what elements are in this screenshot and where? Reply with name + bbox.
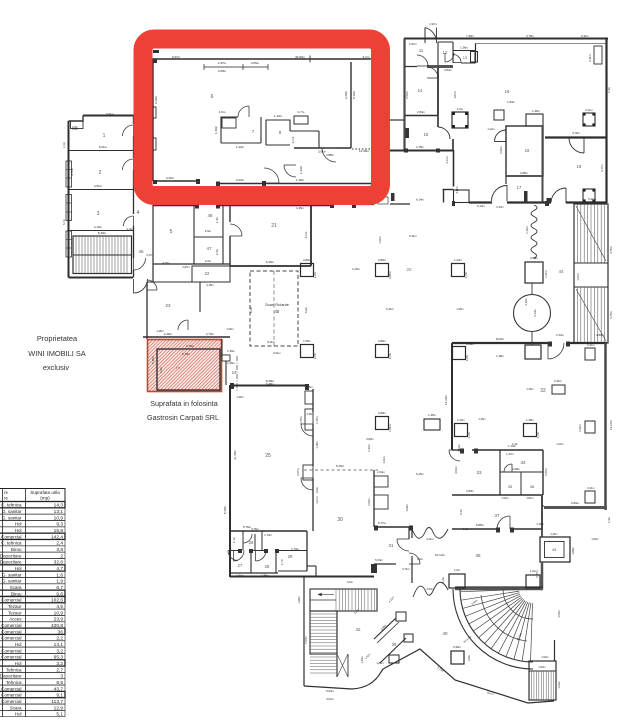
svg-text:2,34m: 2,34m (556, 333, 564, 337)
svg-text:Hol: Hol (15, 642, 22, 647)
svg-text:1,85m: 1,85m (544, 467, 548, 475)
svg-text:1,50m: 1,50m (591, 537, 598, 541)
svg-text:21: 21 (271, 223, 277, 229)
svg-text:1,47m: 1,47m (506, 452, 514, 456)
svg-text:1,84m: 1,84m (507, 100, 515, 104)
svg-text:2,47m: 2,47m (146, 253, 153, 257)
svg-text:5,7m: 5,7m (62, 219, 66, 225)
svg-text:2,96m: 2,96m (499, 145, 503, 153)
svg-text:Proprietatea: Proprietatea (37, 334, 78, 343)
svg-text:6,14m: 6,14m (416, 198, 424, 202)
svg-text:6,0m: 6,0m (347, 580, 353, 584)
svg-text:13,27m: 13,27m (609, 420, 613, 431)
svg-text:1,81m: 1,81m (376, 661, 383, 665)
svg-text:0,80m: 0,80m (530, 256, 538, 260)
svg-text:1,07m: 1,07m (315, 496, 319, 503)
svg-text:34: 34 (520, 460, 526, 465)
svg-text:Scari Rulante: Scari Rulante (265, 302, 290, 307)
svg-text:0,7m: 0,7m (298, 110, 305, 114)
svg-text:2,67m: 2,67m (182, 265, 190, 269)
svg-text:1,21m: 1,21m (378, 236, 382, 243)
svg-text:4,75m: 4,75m (609, 310, 613, 318)
svg-text:6: 6 (211, 94, 214, 100)
svg-text:1,39m: 1,39m (227, 349, 235, 353)
svg-text:5,46m: 5,46m (416, 472, 424, 476)
svg-text:0,86m: 0,86m (388, 270, 392, 278)
svg-text:G. sanitar: G. sanitar (2, 572, 22, 577)
svg-text:1,46m: 1,46m (550, 532, 557, 536)
svg-text:43: 43 (552, 547, 557, 552)
svg-text:exclusiv: exclusiv (43, 363, 70, 372)
svg-text:1,43m: 1,43m (236, 145, 245, 149)
svg-text:1,18m: 1,18m (315, 441, 319, 448)
svg-text:Hol: Hol (15, 661, 22, 666)
svg-text:1,4m: 1,4m (512, 442, 518, 446)
svg-text:29: 29 (288, 554, 293, 559)
svg-text:3,23m: 3,23m (236, 178, 245, 182)
svg-text:4,76m: 4,76m (186, 344, 195, 348)
svg-text:1,73m: 1,73m (291, 547, 299, 551)
svg-text:39: 39 (392, 642, 397, 647)
svg-text:35: 35 (508, 484, 513, 489)
svg-text:13,35m: 13,35m (359, 149, 370, 153)
svg-text:Gastrosin Carpati SRL: Gastrosin Carpati SRL (147, 413, 219, 422)
svg-text:1,2m: 1,2m (465, 354, 469, 361)
svg-text:5,61m: 5,61m (106, 112, 114, 116)
svg-text:0,86m: 0,86m (378, 339, 386, 343)
svg-text:1,39m: 1,39m (236, 395, 243, 399)
svg-text:C. tehnica: C. tehnica (1, 503, 22, 508)
svg-text:5,46m: 5,46m (336, 464, 345, 468)
svg-text:4,15m: 4,15m (296, 206, 304, 210)
svg-text:Tezaur: Tezaur (8, 610, 22, 615)
svg-text:48: 48 (207, 213, 213, 218)
svg-text:0,41m: 0,41m (554, 379, 562, 383)
svg-text:8,03m: 8,03m (496, 337, 505, 341)
svg-text:5,32m: 5,32m (352, 90, 356, 99)
svg-text:6,2m: 6,2m (249, 306, 253, 313)
svg-text:3,71m: 3,71m (402, 567, 410, 571)
svg-text:0,86m: 0,86m (378, 258, 386, 262)
svg-text:4,05m: 4,05m (218, 69, 227, 73)
svg-text:4,83m: 4,83m (571, 501, 580, 505)
svg-text:3: 3 (97, 211, 100, 217)
svg-text:30: 30 (337, 517, 343, 523)
svg-text:7,4m: 7,4m (607, 86, 611, 93)
svg-text:re: re (4, 496, 8, 501)
svg-text:4,88m: 4,88m (326, 153, 335, 157)
svg-text:4,15m: 4,15m (206, 283, 214, 287)
svg-text:2,47m: 2,47m (218, 61, 227, 65)
svg-text:5: 5 (170, 229, 173, 235)
svg-text:2,1m: 2,1m (291, 136, 295, 143)
svg-text:2,97m: 2,97m (409, 42, 417, 46)
svg-text:6,31m: 6,31m (386, 307, 394, 311)
svg-text:Depozitare: Depozitare (0, 553, 22, 558)
svg-text:Comercial: Comercial (1, 598, 21, 603)
svg-text:6,2m: 6,2m (363, 55, 370, 59)
svg-text:3,77m: 3,77m (600, 163, 604, 171)
svg-text:Birou: Birou (11, 591, 22, 596)
svg-text:1,12m: 1,12m (274, 114, 283, 118)
svg-text:1,48m: 1,48m (496, 354, 504, 358)
svg-text:2,08m: 2,08m (512, 467, 520, 471)
svg-text:Comercial: Comercial (1, 655, 21, 660)
svg-text:1,06m: 1,06m (303, 339, 311, 343)
svg-text:1,97m: 1,97m (429, 22, 437, 26)
svg-text:1,24m: 1,24m (454, 258, 462, 262)
svg-text:4,10m: 4,10m (94, 225, 103, 229)
svg-text:Comercial: Comercial (1, 534, 21, 539)
svg-text:re: re (4, 490, 8, 495)
svg-text:47: 47 (206, 246, 212, 251)
svg-text:Acces: Acces (9, 617, 22, 622)
svg-text:1,53m: 1,53m (501, 496, 508, 500)
svg-text:1,0m: 1,0m (530, 569, 537, 573)
svg-text:1,06m: 1,06m (367, 497, 371, 505)
svg-text:1,0m: 1,0m (463, 527, 469, 531)
svg-text:G. sanitar: G. sanitar (2, 515, 22, 520)
svg-text:4,10m: 4,10m (126, 227, 133, 231)
svg-text:1,50m: 1,50m (538, 665, 545, 669)
svg-text:1,1m: 1,1m (232, 536, 236, 543)
svg-text:3,83m: 3,83m (466, 489, 474, 493)
svg-text:33: 33 (476, 470, 482, 475)
svg-text:0,75m: 0,75m (299, 415, 303, 423)
svg-text:19: 19 (577, 164, 582, 169)
svg-text:40: 40 (442, 631, 448, 636)
svg-text:5,45m: 5,45m (151, 355, 155, 363)
svg-text:0,9m: 0,9m (315, 486, 319, 493)
svg-text:1,21m: 1,21m (382, 456, 386, 463)
svg-text:0,41m: 0,41m (587, 343, 594, 347)
svg-text:1,39m: 1,39m (297, 596, 301, 603)
svg-text:42: 42 (355, 627, 361, 632)
svg-text:4,60m: 4,60m (344, 90, 348, 99)
svg-text:27: 27 (238, 563, 243, 568)
svg-text:3,71m: 3,71m (70, 167, 74, 176)
svg-text:Comercial: Comercial (1, 699, 21, 704)
svg-text:1,07m: 1,07m (296, 467, 300, 475)
svg-text:5,28m: 5,28m (223, 505, 227, 514)
svg-text:0,41m: 0,41m (578, 424, 582, 431)
svg-text:14,32m: 14,32m (444, 395, 448, 406)
svg-text:26: 26 (249, 540, 254, 545)
svg-text:1,48m: 1,48m (156, 329, 163, 333)
svg-text:2,53m: 2,53m (405, 90, 409, 98)
svg-text:7,36m: 7,36m (466, 34, 474, 38)
svg-text:4,75m: 4,75m (526, 34, 534, 38)
svg-text:4,76m: 4,76m (572, 131, 580, 135)
svg-text:5,64m: 5,64m (375, 558, 383, 562)
svg-text:1,23m: 1,23m (352, 267, 360, 271)
svg-text:1,81m: 1,81m (526, 496, 533, 500)
svg-text:2,08m: 2,08m (466, 342, 474, 346)
svg-text:1,46m: 1,46m (456, 307, 463, 311)
svg-text:4: 4 (137, 210, 140, 216)
svg-text:0,41m: 0,41m (581, 34, 589, 38)
svg-text:46: 46 (138, 249, 144, 254)
svg-text:Suprafata in folosinta: Suprafata in folosinta (150, 399, 218, 408)
svg-text:6,31m: 6,31m (409, 234, 417, 238)
svg-text:44: 44 (559, 269, 564, 274)
svg-text:1,06m: 1,06m (226, 327, 233, 331)
svg-text:1,1m: 1,1m (62, 142, 66, 148)
svg-text:1,2m: 1,2m (313, 352, 317, 359)
svg-text:Hol: Hol (15, 522, 22, 527)
svg-text:G. sanitar: G. sanitar (2, 509, 22, 514)
svg-text:Comercial: Comercial (1, 629, 21, 634)
svg-text:5,73m: 5,73m (182, 352, 190, 356)
svg-text:Comercial: Comercial (1, 623, 21, 628)
svg-text:Comercial: Comercial (1, 686, 21, 691)
svg-text:WINI IMOBILI SA: WINI IMOBILI SA (28, 349, 86, 358)
svg-text:14: 14 (418, 88, 423, 93)
svg-text:24: 24 (232, 370, 237, 375)
svg-text:1,35m: 1,35m (478, 417, 485, 421)
svg-text:32: 32 (540, 388, 546, 394)
svg-text:38: 38 (475, 553, 481, 558)
svg-text:18: 18 (525, 148, 530, 153)
svg-text:3,77m: 3,77m (378, 521, 387, 525)
svg-text:15: 15 (424, 132, 429, 137)
svg-text:4,11m: 4,11m (455, 186, 459, 193)
svg-text:0,95m: 0,95m (453, 645, 461, 649)
svg-text:3,17m: 3,17m (445, 156, 449, 163)
svg-text:4,53m: 4,53m (426, 587, 433, 591)
svg-text:4,28m: 4,28m (154, 95, 158, 104)
svg-text:2,8m: 2,8m (72, 125, 78, 129)
svg-text:2,9m: 2,9m (205, 229, 212, 233)
svg-text:4,73m: 4,73m (206, 332, 215, 336)
svg-text:3,9m: 3,9m (159, 366, 163, 373)
svg-text:37: 37 (494, 513, 500, 518)
svg-text:(mp): (mp) (40, 496, 50, 501)
svg-text:Tehnica: Tehnica (6, 680, 22, 685)
svg-text:1,36m: 1,36m (532, 109, 540, 113)
svg-text:1,35m: 1,35m (526, 418, 534, 422)
svg-text:0,80m: 0,80m (378, 411, 386, 415)
svg-text:0,97m: 0,97m (172, 55, 181, 59)
svg-text:1,40m: 1,40m (214, 125, 218, 134)
svg-text:7,03m: 7,03m (304, 635, 308, 643)
svg-text:1,88m: 1,88m (571, 547, 575, 554)
svg-text:Comercial: Comercial (1, 648, 21, 653)
svg-text:3,14m: 3,14m (533, 308, 537, 316)
svg-text:0,80m: 0,80m (366, 437, 373, 441)
svg-text:Scara: Scara (10, 585, 22, 590)
svg-text:3,21m: 3,21m (273, 351, 281, 355)
svg-text:6,2m: 6,2m (304, 307, 308, 313)
svg-text:Comercial: Comercial (1, 636, 21, 641)
svg-text:Birou: Birou (11, 547, 22, 552)
svg-text:4,21m: 4,21m (426, 537, 434, 541)
svg-text:4,75m: 4,75m (609, 245, 613, 253)
svg-text:1,9m: 1,9m (219, 110, 226, 114)
svg-text:0,6m: 0,6m (467, 655, 471, 661)
svg-text:1: 1 (103, 133, 106, 139)
svg-text:1,50m: 1,50m (557, 610, 561, 617)
svg-text:Tezaur: Tezaur (8, 604, 22, 609)
svg-text:1,18m: 1,18m (296, 178, 305, 182)
svg-text:1,7m: 1,7m (280, 558, 284, 565)
svg-text:3,84m: 3,84m (444, 68, 452, 72)
svg-text:7,7: 7,7 (176, 366, 181, 370)
svg-text:2,75m: 2,75m (416, 145, 424, 149)
svg-text:5,1: 5,1 (56, 712, 63, 718)
svg-text:1,47m: 1,47m (576, 273, 580, 280)
svg-text:1,35m: 1,35m (227, 361, 235, 365)
svg-text:1,50m: 1,50m (541, 655, 548, 659)
svg-text:1,35m: 1,35m (428, 413, 436, 417)
svg-text:1,0m: 1,0m (417, 557, 423, 561)
svg-text:0,41m: 0,41m (585, 108, 592, 112)
svg-text:1,2m: 1,2m (313, 271, 317, 278)
svg-text:Suprafata utila: Suprafata utila (30, 490, 60, 495)
svg-text:6,14m: 6,14m (477, 204, 485, 208)
svg-text:0,33m: 0,33m (496, 205, 503, 209)
svg-text:4,51m: 4,51m (94, 184, 103, 188)
svg-text:1,73m: 1,73m (264, 533, 272, 537)
svg-text:5,61m: 5,61m (99, 145, 108, 149)
svg-text:1,0m: 1,0m (454, 568, 461, 572)
svg-text:1,4m: 1,4m (215, 216, 219, 223)
svg-text:C. tehnica: C. tehnica (1, 541, 22, 546)
svg-text:1,2m: 1,2m (467, 431, 471, 438)
svg-text:3,32m: 3,32m (166, 176, 175, 180)
svg-text:3,76m: 3,76m (251, 527, 259, 531)
svg-text:1,50m: 1,50m (557, 681, 561, 688)
svg-text:6,25m: 6,25m (266, 260, 275, 264)
svg-text:1,15m: 1,15m (315, 415, 319, 423)
svg-text:2,49m: 2,49m (164, 332, 173, 336)
svg-text:13: 13 (463, 55, 468, 60)
svg-text:31: 31 (388, 543, 394, 548)
svg-text:Hol: Hol (15, 528, 22, 533)
svg-text:23: 23 (165, 303, 171, 308)
svg-text:17: 17 (517, 185, 522, 190)
svg-text:Hol: Hol (15, 712, 22, 717)
svg-text:2,4m: 2,4m (215, 248, 219, 255)
svg-text:1,0m: 1,0m (457, 107, 464, 111)
svg-text:1,10m: 1,10m (525, 225, 529, 233)
svg-text:2,04m: 2,04m (377, 470, 385, 474)
svg-text:Scara: Scara (10, 705, 22, 710)
svg-text:1,21m: 1,21m (388, 423, 392, 431)
svg-text:1,43m: 1,43m (299, 165, 303, 174)
svg-text:4,2m: 4,2m (304, 231, 308, 238)
svg-text:4,83m: 4,83m (596, 333, 604, 337)
svg-text:40,84m: 40,84m (295, 55, 306, 59)
svg-text:22: 22 (205, 271, 210, 276)
svg-text:16: 16 (505, 89, 510, 94)
svg-text:1,06m: 1,06m (405, 504, 409, 511)
svg-text:1,23m: 1,23m (457, 418, 465, 422)
svg-text:6,41m: 6,41m (588, 53, 592, 61)
svg-text:1,12m: 1,12m (487, 127, 494, 131)
svg-text:Hol: Hol (15, 566, 22, 571)
svg-text:1,36m: 1,36m (526, 387, 533, 391)
svg-text:5,04m: 5,04m (326, 689, 334, 693)
svg-text:8,11m: 8,11m (267, 340, 275, 344)
svg-text:Tehnica: Tehnica (6, 667, 22, 672)
svg-text:4,4m: 4,4m (459, 508, 463, 515)
svg-text:1,2m: 1,2m (388, 352, 392, 359)
svg-text:20: 20 (406, 267, 412, 272)
svg-text:28: 28 (265, 564, 270, 569)
svg-text:45: 45 (275, 309, 280, 314)
svg-text:1,35m: 1,35m (306, 412, 313, 416)
svg-text:1,2m: 1,2m (536, 431, 540, 438)
svg-text:3,2m: 3,2m (205, 259, 212, 263)
svg-text:3,14m: 3,14m (524, 298, 528, 305)
svg-text:2: 2 (99, 170, 102, 176)
svg-text:0,41m: 0,41m (587, 486, 594, 490)
svg-text:1,87m: 1,87m (453, 91, 457, 98)
svg-text:36: 36 (530, 484, 535, 489)
svg-text:1,43m: 1,43m (360, 656, 364, 663)
svg-text:10,14m: 10,14m (435, 553, 446, 557)
svg-text:4,75m: 4,75m (162, 261, 169, 265)
svg-text:2,84m: 2,84m (417, 110, 425, 114)
svg-text:Depozitare: Depozitare (0, 674, 22, 679)
svg-text:Comercial: Comercial (1, 693, 21, 698)
svg-text:25: 25 (265, 453, 271, 459)
svg-text:5,40m: 5,40m (98, 231, 107, 235)
svg-text:2,86m: 2,86m (520, 171, 528, 175)
svg-text:1,23m: 1,23m (556, 442, 563, 446)
svg-text:1,2m: 1,2m (464, 271, 468, 278)
svg-text:1,46m: 1,46m (536, 522, 543, 526)
svg-text:Depozitare: Depozitare (0, 560, 22, 565)
svg-text:5,85m: 5,85m (476, 523, 485, 527)
svg-text:G. sanitar: G. sanitar (2, 579, 22, 584)
svg-text:3,06m: 3,06m (454, 465, 458, 473)
svg-text:1,36m: 1,36m (460, 46, 468, 50)
svg-text:11: 11 (419, 48, 424, 53)
svg-text:6,48m: 6,48m (266, 382, 274, 386)
svg-text:1,33m: 1,33m (367, 443, 371, 451)
svg-text:11,45m: 11,45m (233, 450, 237, 460)
svg-text:4,05m: 4,05m (251, 61, 260, 65)
svg-text:5,04m: 5,04m (326, 697, 333, 701)
svg-text:0,80m: 0,80m (303, 258, 311, 262)
svg-text:1,3m: 1,3m (607, 517, 611, 523)
svg-text:1,21m: 1,21m (544, 269, 548, 277)
